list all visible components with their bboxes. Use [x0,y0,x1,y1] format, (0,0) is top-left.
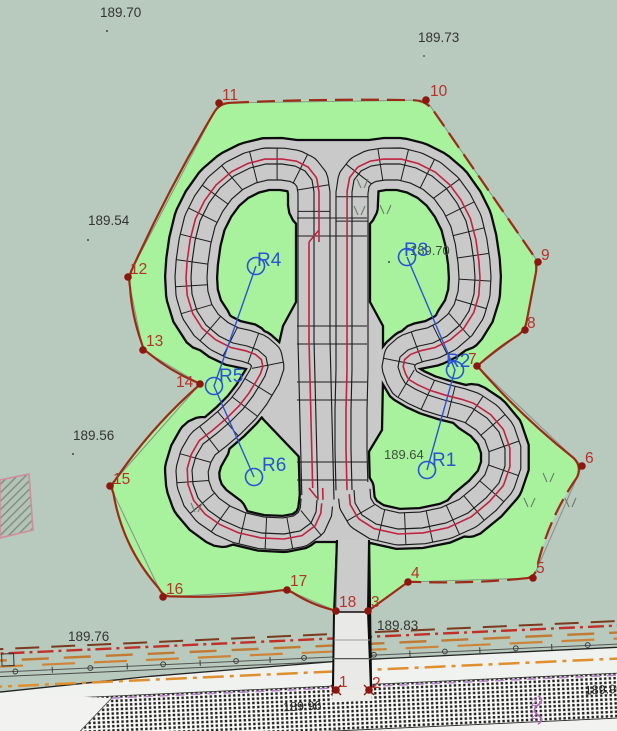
svg-text:14: 14 [176,374,194,391]
svg-text:189.96: 189.96 [283,699,322,715]
svg-text:R5: R5 [219,366,243,387]
svg-text:2: 2 [531,697,537,709]
svg-text:12: 12 [130,261,147,278]
svg-text:16: 16 [166,581,183,598]
svg-text:3: 3 [371,594,380,611]
svg-text:189.56: 189.56 [73,428,114,443]
svg-text:13: 13 [146,333,163,350]
svg-text:R1: R1 [432,450,456,471]
svg-text:2: 2 [372,675,381,692]
svg-text:8: 8 [527,315,536,332]
svg-text:189.96: 189.96 [584,682,617,698]
svg-text:18: 18 [339,594,356,611]
svg-text:189.70: 189.70 [100,5,141,20]
svg-text:189.64: 189.64 [384,447,424,462]
svg-text:189.73: 189.73 [418,30,459,45]
svg-text:189.76: 189.76 [68,629,109,644]
svg-text:R2: R2 [446,351,470,372]
svg-text:9: 9 [541,247,550,264]
svg-text:R3: R3 [404,240,428,261]
svg-text:R6: R6 [262,455,286,476]
svg-text:4: 4 [411,565,420,582]
svg-text:11: 11 [222,87,238,104]
svg-text:5: 5 [536,560,545,577]
svg-text:1: 1 [339,674,348,691]
svg-text:6: 6 [585,450,594,467]
svg-text:10: 10 [430,83,448,100]
svg-text:R4: R4 [257,250,282,271]
svg-text:15: 15 [113,471,130,488]
svg-text:189.83: 189.83 [377,618,418,633]
svg-text:2: 2 [531,710,537,722]
svg-text:17: 17 [290,573,307,590]
svg-text:189.54: 189.54 [88,213,130,228]
